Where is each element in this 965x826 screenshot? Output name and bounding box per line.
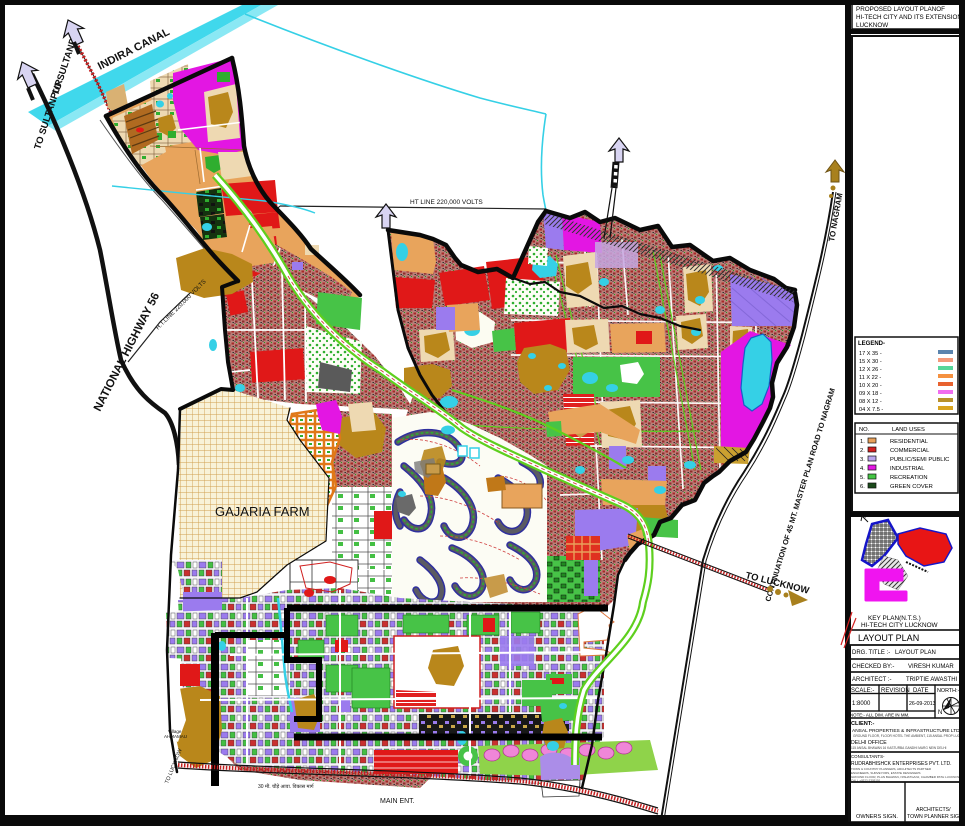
svg-text:ARCHITECTS/: ARCHITECTS/ — [916, 807, 951, 813]
svg-text:MAIN ENT.: MAIN ENT. — [380, 798, 415, 805]
svg-text:PROPOSED LAYOUT PLANOF: PROPOSED LAYOUT PLANOF — [856, 6, 945, 13]
svg-text:VIRESH KUMAR: VIRESH KUMAR — [908, 664, 954, 670]
svg-text:CLIENT:-: CLIENT:- — [851, 721, 874, 727]
svg-text:RESIDENTIAL: RESIDENTIAL — [890, 439, 929, 445]
svg-text:GROUND FLOOR, FLOOR HOTEL T: GROUND FLOOR, FLOOR HOTEL THE AMBIENT, 1… — [853, 734, 965, 738]
svg-text:1:8000: 1:8000 — [852, 701, 871, 707]
svg-text:N: N — [938, 710, 942, 716]
svg-text:ARCHITECT :-: ARCHITECT :- — [852, 677, 892, 683]
svg-text:2.: 2. — [860, 448, 865, 454]
svg-text:PUBLIC/SEMI PUBLIC: PUBLIC/SEMI PUBLIC — [890, 457, 949, 463]
svg-text:NORTH:-: NORTH:- — [937, 688, 960, 694]
svg-text:04 X 7.5 -: 04 X 7.5 - — [859, 407, 883, 413]
svg-text:LEGEND-: LEGEND- — [858, 341, 885, 347]
svg-text:CHECKED BY:-: CHECKED BY:- — [852, 664, 894, 670]
svg-text:LAYOUT PLAN: LAYOUT PLAN — [858, 633, 919, 643]
svg-text:HT LINE 220,000 VOLTS: HT LINE 220,000 VOLTS — [410, 199, 483, 206]
svg-text:5.: 5. — [860, 475, 865, 481]
svg-text:INDUSTRIAL: INDUSTRIAL — [890, 466, 925, 472]
svg-text:KEY PLAN(N.T.S.): KEY PLAN(N.T.S.) — [868, 615, 921, 622]
svg-text:GREEN COVER: GREEN COVER — [890, 484, 933, 490]
svg-text:TRIPTIE AWASTHI: TRIPTIE AWASTHI — [906, 677, 958, 683]
svg-text:LAND USES: LAND USES — [892, 427, 925, 433]
svg-text:10 X 20 -: 10 X 20 - — [859, 383, 882, 389]
svg-text:CONSULTANTS-: CONSULTANTS- — [851, 754, 885, 759]
svg-text:DRG. TITLE :-: DRG. TITLE :- — [852, 650, 890, 656]
svg-text:4.: 4. — [860, 466, 865, 472]
svg-text:NOTE:- ALL DIM. ARE IN MM.: NOTE:- ALL DIM. ARE IN MM. — [850, 713, 909, 718]
svg-text:26-09-2013: 26-09-2013 — [909, 701, 936, 707]
svg-text:DATE: DATE — [913, 688, 929, 694]
svg-text:GAJARIA FARM: GAJARIA FARM — [215, 504, 310, 519]
svg-text:6.: 6. — [860, 484, 865, 490]
svg-text:08 X 12 -: 08 X 12 - — [859, 399, 882, 405]
svg-text:30 मी. चौड़े आवा. विकास मार्: 30 मी. चौड़े आवा. विकास मार्ग — [258, 783, 315, 790]
svg-text:AHMAMAU: AHMAMAU — [164, 734, 187, 739]
svg-text:11 X 22 -: 11 X 22 - — [859, 375, 881, 381]
svg-text:TOWN PLANNER SIGN.: TOWN PLANNER SIGN. — [907, 814, 964, 820]
svg-text:LUCKNOW: LUCKNOW — [856, 22, 888, 29]
svg-text:3.: 3. — [860, 457, 865, 463]
svg-text:09 X 18 -: 09 X 18 - — [859, 391, 882, 397]
svg-text:12 X 26 -: 12 X 26 - — [859, 367, 882, 373]
svg-text:115 ANSAL BHAWAN 16 KASTURBA G: 115 ANSAL BHAWAN 16 KASTURBA GANDHI MARG… — [851, 746, 947, 750]
svg-text:1.: 1. — [860, 439, 865, 445]
svg-text:NO.: NO. — [859, 427, 870, 433]
svg-text:COMMERCIAL: COMMERCIAL — [890, 448, 930, 454]
svg-text:RECREATION: RECREATION — [890, 475, 928, 481]
svg-text:OWNERS SIGN.: OWNERS SIGN. — [856, 814, 898, 820]
svg-text:HI-TECH CITY AND ITS EXTENSION: HI-TECH CITY AND ITS EXTENSION , — [856, 14, 965, 21]
svg-text:HI-TECH CITY LUCKNOW: HI-TECH CITY LUCKNOW — [861, 622, 939, 629]
svg-text:LAYOUT PLAN: LAYOUT PLAN — [895, 650, 936, 656]
svg-text:17 X 35 -: 17 X 35 - — [859, 351, 882, 357]
svg-text:SCALE:-: SCALE:- — [851, 688, 874, 694]
svg-text:REVISION: REVISION — [881, 688, 910, 694]
svg-text:15 X 30 -: 15 X 30 - — [859, 359, 882, 365]
